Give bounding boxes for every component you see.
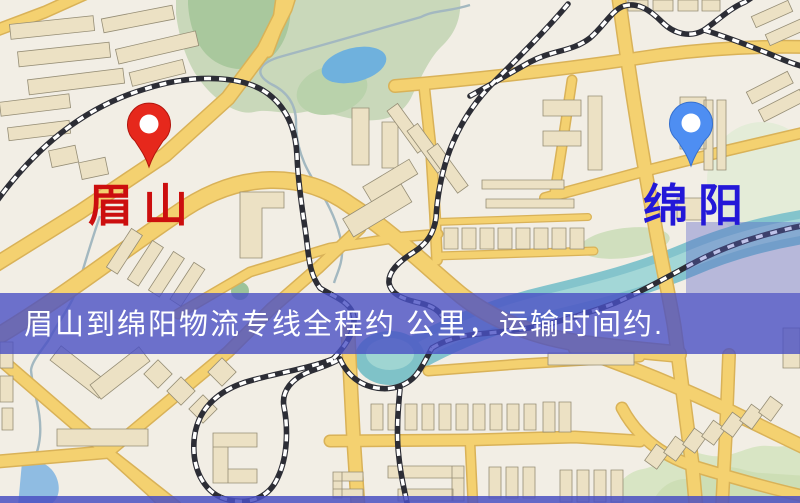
map-pin-hole xyxy=(682,114,701,133)
map-pin-hole xyxy=(140,115,159,134)
info-banner: 眉山到绵阳物流专线全程约 公里，运输时间约. xyxy=(0,293,800,354)
river-tint-overlay xyxy=(686,222,800,293)
destination-city-label: 绵阳 xyxy=(643,181,753,231)
map-screenshot: 眉山到绵阳物流专线全程约 公里，运输时间约. 眉山 绵阳 xyxy=(0,0,800,503)
bottom-edge-strip xyxy=(0,496,800,503)
origin-city-label: 眉山 xyxy=(88,181,198,231)
info-banner-text: 眉山到绵阳物流专线全程约 公里，运输时间约. xyxy=(24,308,664,341)
